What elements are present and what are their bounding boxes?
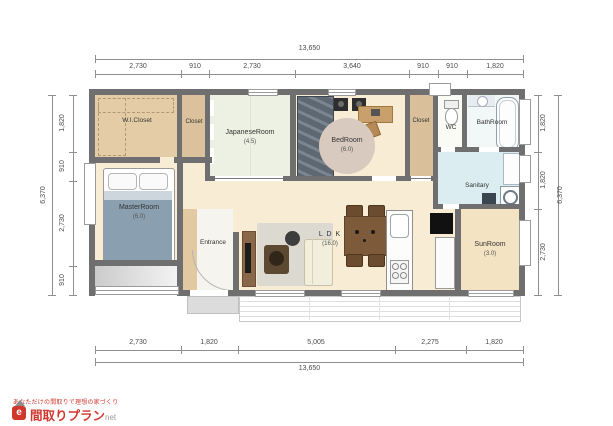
wall-japanese-bedroom <box>290 89 296 181</box>
room-name: BedRoom <box>331 137 362 146</box>
room-size: (3.0) <box>474 250 505 259</box>
wall-wic-closet <box>177 89 182 163</box>
room-label-japanese: JapaneseRoom (4.5) <box>225 129 274 146</box>
duvet-fold <box>104 191 172 200</box>
dim-left-seg: 910 <box>58 146 68 186</box>
tableware <box>355 230 359 234</box>
tick <box>95 346 96 354</box>
tick <box>467 70 468 78</box>
logo-brand: 間取りプランnet <box>30 405 116 424</box>
round-side-table <box>285 231 300 246</box>
tick <box>523 55 524 63</box>
hanger-rack <box>98 98 174 113</box>
duvet <box>104 191 172 261</box>
armchair-cushion <box>269 251 284 266</box>
room-label-master: MasterRoom (6.0) <box>119 204 159 221</box>
deck-joint <box>379 296 380 320</box>
wall-master-south <box>89 260 183 266</box>
dim-bottom-seg: 1,820 <box>189 338 229 347</box>
tick <box>534 295 542 296</box>
room-name: MasterRoom <box>119 204 159 213</box>
floor-plan-canvas: 13,650 2,730 910 2,730 3,640 910 910 1,8… <box>0 0 613 426</box>
dim-top-seg: 910 <box>432 62 472 71</box>
dim-line <box>95 74 524 75</box>
window-sunroom-south <box>468 290 514 297</box>
dim-line <box>95 362 524 363</box>
dim-left-total: 6,370 <box>39 175 49 215</box>
room-label-closet-east: Closet <box>412 117 429 126</box>
sanitary-cabinet <box>503 153 520 185</box>
room-name: JapaneseRoom <box>225 129 274 138</box>
dim-left-seg: 1,820 <box>58 103 68 143</box>
dim-top-total: 13,650 <box>95 44 524 53</box>
room-size: (16.0) <box>319 240 341 249</box>
door-sanitary <box>443 204 459 209</box>
room-label-sunroom: SunRoom (3.0) <box>474 241 505 258</box>
tick <box>69 95 77 96</box>
window-bath-east <box>519 99 531 145</box>
door-wic <box>160 157 174 163</box>
tick <box>534 95 542 96</box>
tick <box>554 295 562 296</box>
desk-monitor <box>371 109 380 116</box>
dim-top-seg: 910 <box>175 62 215 71</box>
room-label-bathroom: BathRoom <box>477 119 508 128</box>
dim-top-seg: 1,820 <box>475 62 515 71</box>
tick <box>523 346 524 354</box>
tick <box>48 95 56 96</box>
window-master-west <box>84 163 96 225</box>
lamp <box>338 101 344 107</box>
washer-drum <box>503 190 518 205</box>
kitchen-sink <box>390 214 409 238</box>
door-bath <box>479 147 499 152</box>
dining-table <box>344 216 388 256</box>
dim-bottom-seg: 2,275 <box>410 338 450 347</box>
dim-line <box>95 59 524 60</box>
room-label-closet-north: Closet <box>185 118 202 127</box>
wood-deck <box>239 296 521 322</box>
tick <box>181 346 182 354</box>
tick <box>69 266 77 267</box>
window-sunroom-east <box>519 220 531 266</box>
dim-bottom-total: 13,650 <box>95 364 524 373</box>
dim-top-seg: 2,730 <box>118 62 158 71</box>
burner <box>400 272 407 279</box>
deck-joint <box>309 296 310 320</box>
dim-line <box>52 95 53 295</box>
tick <box>69 181 77 182</box>
pillow <box>139 173 168 190</box>
toilet-bowl <box>445 108 458 125</box>
room-size: (4.5) <box>225 138 274 147</box>
burner <box>400 263 407 270</box>
tick <box>409 70 410 78</box>
window-bedroom-north <box>328 89 356 96</box>
room-size: (6.0) <box>119 213 159 222</box>
logo-brand-text: 間取りプラン <box>30 409 105 423</box>
entrance-door-gap <box>190 290 228 296</box>
window-wc-bay <box>429 83 451 96</box>
dim-bottom-seg: 5,005 <box>296 338 336 347</box>
room-name: SunRoom <box>474 241 505 250</box>
window-engawa-south <box>95 286 179 295</box>
tick <box>438 70 439 78</box>
deck-joint <box>449 296 450 320</box>
wall-wc-bath <box>462 89 467 152</box>
room-label-bedroom: BedRoom (6.0) <box>331 137 362 154</box>
dim-right-seg: 2,730 <box>539 232 549 272</box>
tableware <box>363 239 366 242</box>
door-bedroom <box>372 176 396 181</box>
tick <box>209 70 210 78</box>
dim-line <box>95 350 524 351</box>
dim-right-total: 6,370 <box>556 175 566 215</box>
tick <box>69 295 77 296</box>
wall-closet-japanese <box>205 89 210 181</box>
tick <box>295 70 296 78</box>
logo-e-icon: e <box>12 406 26 420</box>
tv-on-board <box>245 243 251 273</box>
dim-top-seg: 2,730 <box>232 62 272 71</box>
tick <box>395 346 396 354</box>
closet-door-mark <box>210 100 214 116</box>
room-label-entrance: Entrance <box>200 239 226 248</box>
room-size: (6.0) <box>331 146 362 155</box>
tick <box>95 55 96 63</box>
dim-line <box>73 95 74 295</box>
dim-bottom-seg: 2,730 <box>118 338 158 347</box>
washbasin <box>477 96 488 107</box>
tick <box>69 152 77 153</box>
window-ldk-south-2 <box>341 290 381 297</box>
tick <box>534 152 542 153</box>
wall-north <box>89 89 525 95</box>
pillow <box>108 173 137 190</box>
wall-sunroom-west <box>455 209 461 296</box>
room-label-sanitary: Sanitary <box>465 182 489 191</box>
tick <box>95 70 96 78</box>
dim-right-seg: 1,820 <box>539 160 549 200</box>
room-label-wc: WC <box>446 124 457 133</box>
sliding-door-track <box>215 178 283 179</box>
tick <box>534 209 542 210</box>
tick <box>554 95 562 96</box>
wall-wic-south <box>95 157 212 163</box>
wall-bedroom-closet <box>405 89 410 181</box>
porch <box>187 296 239 314</box>
window-japanese-north <box>248 89 278 96</box>
dim-right-seg: 1,820 <box>539 103 549 143</box>
tick <box>181 70 182 78</box>
sliding-door-track <box>411 178 431 179</box>
dim-bottom-seg: 1,820 <box>474 338 514 347</box>
wall-tv <box>430 213 453 234</box>
window-ldk-south-1 <box>255 290 305 297</box>
tick <box>466 346 467 354</box>
dim-left-seg: 2,730 <box>58 203 68 243</box>
logo-suffix-text: net <box>105 413 116 422</box>
dining-chair <box>346 254 363 267</box>
closet-door-mark <box>210 124 214 140</box>
burner <box>392 272 399 279</box>
window-sanitary-east <box>519 155 531 183</box>
tick <box>238 346 239 354</box>
dim-left-seg: 910 <box>58 260 68 300</box>
dining-chair <box>368 254 385 267</box>
wall-entrance-ldk <box>233 232 239 296</box>
room-name: L D K <box>319 231 341 240</box>
engawa-floor <box>95 266 177 288</box>
door-wc <box>441 147 455 152</box>
tick <box>48 295 56 296</box>
room-label-ldk: L D K (16.0) <box>319 231 341 248</box>
burner <box>392 263 399 270</box>
closet-east-floor <box>410 95 433 176</box>
tick <box>523 70 524 78</box>
wall-master-east <box>177 157 183 296</box>
dim-top-seg: 3,640 <box>332 62 372 71</box>
tableware <box>371 230 375 234</box>
sofa-seam <box>312 239 313 284</box>
room-label-wic: W.I.Closet <box>122 117 152 126</box>
tall-cabinet <box>435 237 455 289</box>
